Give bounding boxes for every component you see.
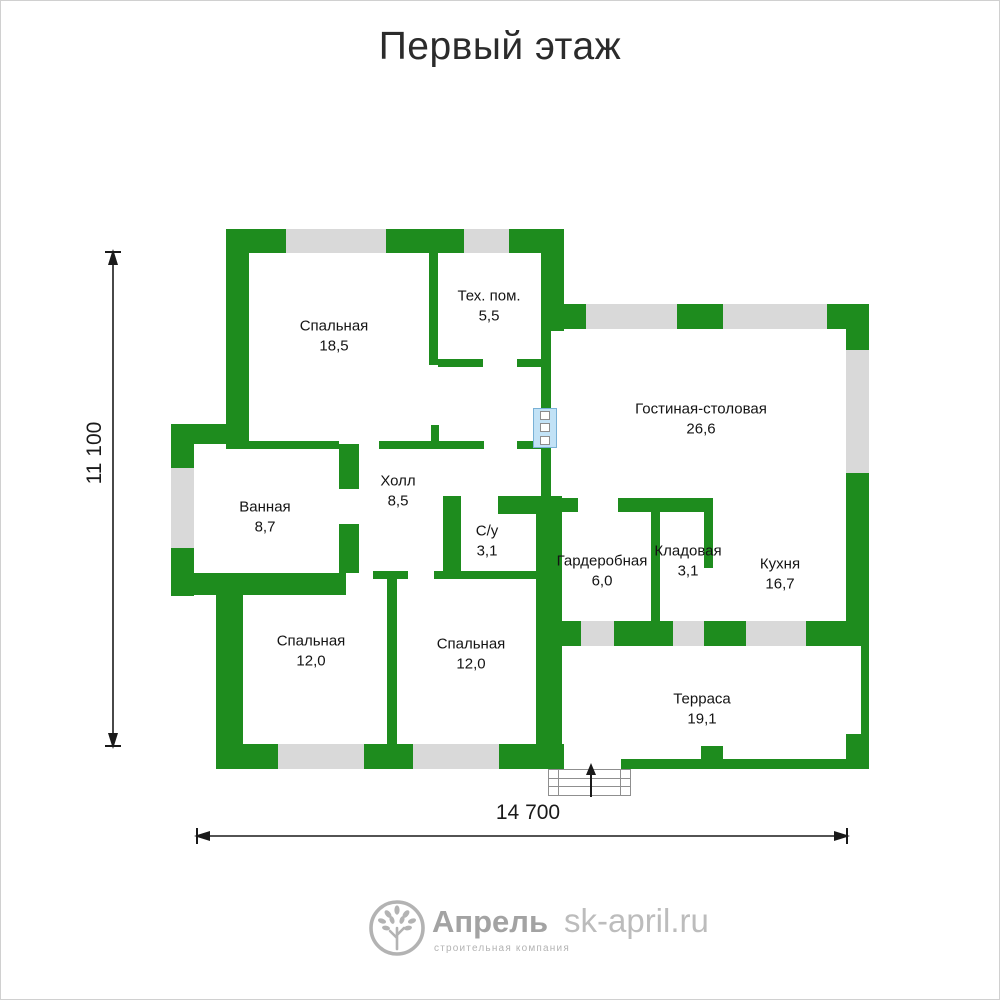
width-dimension-label: 14 700 bbox=[496, 801, 560, 825]
room-name: Холл bbox=[380, 472, 415, 492]
room-name: Спальная bbox=[300, 317, 369, 337]
room-name: С/у bbox=[476, 522, 499, 542]
page-title: Первый этаж bbox=[1, 25, 999, 69]
room-name: Кладовая bbox=[654, 542, 721, 562]
room-name: Терраса bbox=[673, 690, 731, 710]
wall-segment bbox=[618, 498, 713, 512]
window-segment bbox=[464, 229, 509, 253]
wall-segment bbox=[226, 253, 249, 444]
wall-segment bbox=[226, 441, 339, 449]
room-label-wardrobe: Гардеробная 6,0 bbox=[557, 552, 648, 591]
room-label-bedroom-2: Спальная 12,0 bbox=[277, 632, 346, 671]
room-label-terrace: Терраса 19,1 bbox=[673, 690, 731, 729]
wall-segment bbox=[536, 496, 562, 744]
wall-segment bbox=[339, 444, 359, 489]
room-name: Ванная bbox=[239, 498, 290, 518]
window-segment bbox=[581, 621, 614, 646]
room-area: 16,7 bbox=[760, 574, 800, 594]
room-label-bedroom-3: Спальная 12,0 bbox=[437, 635, 506, 674]
wall-segment bbox=[387, 579, 397, 744]
wall-segment bbox=[861, 646, 869, 769]
company-tagline: строительная компания bbox=[434, 943, 570, 954]
window-segment bbox=[278, 744, 364, 769]
room-area: 12,0 bbox=[277, 651, 346, 671]
wall-segment bbox=[701, 746, 723, 759]
stairs-up-arrow-icon bbox=[581, 761, 601, 799]
room-name: Гостиная-столовая bbox=[635, 400, 767, 420]
wall-segment bbox=[541, 253, 564, 331]
window-pane-icon bbox=[540, 436, 550, 445]
room-label-bedroom-master: Спальная 18,5 bbox=[300, 317, 369, 356]
room-label-tech-room: Тех. пом. 5,5 bbox=[457, 287, 520, 326]
stair-rail bbox=[620, 770, 621, 795]
window-segment bbox=[846, 350, 869, 473]
wall-segment bbox=[846, 734, 861, 759]
wall-segment bbox=[443, 496, 461, 573]
height-dimension-label: 11 100 bbox=[83, 422, 107, 485]
wall-segment bbox=[517, 359, 541, 367]
company-logo-tree-icon bbox=[367, 898, 427, 958]
wall-segment bbox=[621, 759, 869, 769]
room-label-storage: Кладовая 3,1 bbox=[654, 542, 721, 581]
room-name: Гардеробная bbox=[557, 552, 648, 572]
room-area: 8,7 bbox=[239, 517, 290, 537]
window-segment bbox=[723, 304, 827, 329]
window-segment bbox=[286, 229, 386, 253]
width-dimension-line bbox=[193, 822, 851, 850]
wall-segment bbox=[216, 744, 564, 769]
window-pane-icon bbox=[540, 411, 550, 420]
room-area: 8,5 bbox=[380, 491, 415, 511]
wall-segment bbox=[171, 573, 346, 595]
wall-segment bbox=[339, 524, 359, 573]
room-name: Спальная bbox=[437, 635, 506, 655]
room-label-hall: Холл 8,5 bbox=[380, 472, 415, 511]
window-segment bbox=[746, 621, 806, 646]
window-segment bbox=[586, 304, 677, 329]
room-area: 26,6 bbox=[635, 419, 767, 439]
room-name: Тех. пом. bbox=[457, 287, 520, 307]
stair-rail bbox=[558, 770, 559, 795]
room-name: Спальная bbox=[277, 632, 346, 652]
room-label-bathroom: Ванная 8,7 bbox=[239, 498, 290, 537]
height-dimension-line bbox=[99, 247, 129, 751]
room-label-wc: С/у 3,1 bbox=[476, 522, 499, 561]
wall-segment bbox=[379, 441, 484, 449]
window-segment bbox=[673, 621, 704, 646]
floor-plan-page: Первый этаж bbox=[0, 0, 1000, 1000]
company-name: Апрель bbox=[432, 904, 548, 940]
room-name: Кухня bbox=[760, 555, 800, 575]
room-area: 12,0 bbox=[437, 654, 506, 674]
room-area: 3,1 bbox=[654, 561, 721, 581]
room-label-living-dining: Гостиная-столовая 26,6 bbox=[635, 400, 767, 439]
wall-segment bbox=[216, 573, 243, 769]
wall-segment bbox=[438, 359, 483, 367]
room-label-kitchen: Кухня 16,7 bbox=[760, 555, 800, 594]
room-area: 5,5 bbox=[457, 306, 520, 326]
wall-segment bbox=[226, 229, 564, 253]
room-area: 3,1 bbox=[476, 541, 499, 561]
wall-segment bbox=[373, 571, 408, 579]
interior-window-icon bbox=[533, 408, 557, 448]
wall-segment bbox=[429, 253, 438, 365]
website-link[interactable]: sk-april.ru bbox=[564, 902, 709, 940]
room-area: 6,0 bbox=[557, 571, 648, 591]
room-area: 19,1 bbox=[673, 709, 731, 729]
window-segment bbox=[413, 744, 499, 769]
wall-segment bbox=[549, 498, 578, 512]
window-segment bbox=[171, 468, 194, 548]
room-area: 18,5 bbox=[300, 336, 369, 356]
wall-segment bbox=[498, 496, 536, 514]
window-pane-icon bbox=[540, 423, 550, 432]
